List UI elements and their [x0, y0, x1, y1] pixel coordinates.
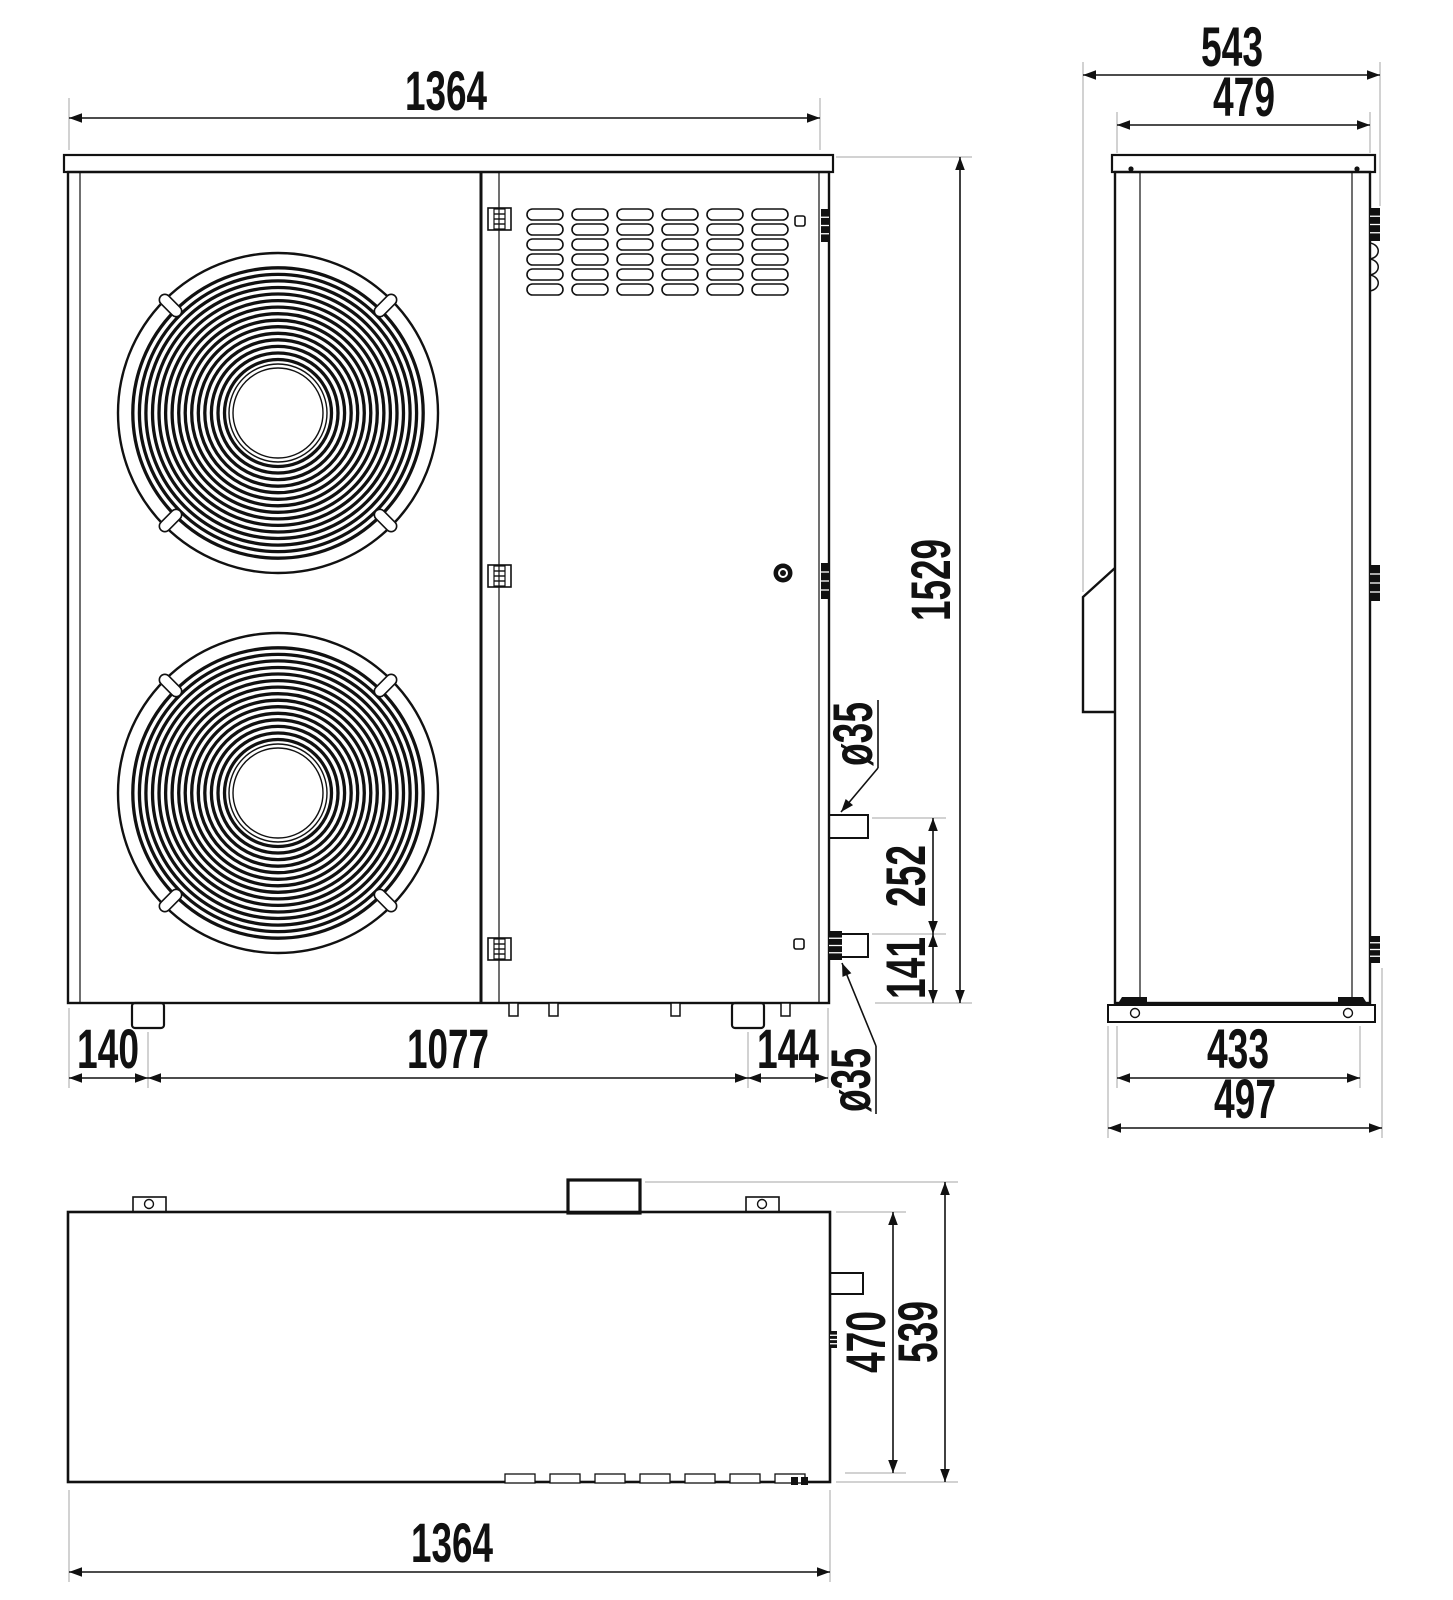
- base-foot-right: [1338, 997, 1368, 1005]
- drain-tab: [781, 1003, 790, 1016]
- door-square-hole-bottom: [794, 939, 804, 949]
- fan-grille-lower: [118, 633, 438, 953]
- louver-slot: [527, 284, 563, 295]
- louver-slot: [617, 224, 653, 235]
- dim-front-width: 1364: [69, 59, 820, 150]
- dim-foot-left-label: 140: [77, 1017, 139, 1080]
- top-latch-right: [746, 1197, 779, 1212]
- louver-slot: [527, 224, 563, 235]
- drain-tabs: [509, 1003, 790, 1016]
- cap-screw-right: [1354, 166, 1359, 171]
- louver-slot: [752, 209, 788, 220]
- base-hole-left: [1131, 1009, 1140, 1018]
- louver-slot: [527, 239, 563, 250]
- drain-tab: [509, 1003, 518, 1016]
- louver-slot: [572, 224, 608, 235]
- louver-slot: [662, 224, 698, 235]
- top-drain-tab: [775, 1474, 805, 1483]
- louver-slot: [662, 254, 698, 265]
- louver-slot: [707, 224, 743, 235]
- louver-slot: [527, 269, 563, 280]
- louver-slot: [572, 209, 608, 220]
- door-lock: [774, 564, 793, 583]
- dim-feet-span-label: 1077: [407, 1017, 489, 1080]
- fan-hub: [233, 368, 323, 458]
- fan-hub: [233, 748, 323, 838]
- louver-slot: [527, 209, 563, 220]
- louver-slot: [707, 254, 743, 265]
- dim-pipe-spacing-label: 252: [874, 845, 937, 907]
- front-mount-bracket-lower: [821, 563, 829, 599]
- side-view: [1083, 155, 1378, 1022]
- pipe-fitting-ribbed: [829, 931, 842, 960]
- louver-slot: [617, 254, 653, 265]
- top-edge-mark-b: [801, 1477, 808, 1485]
- louver-slot: [707, 209, 743, 220]
- top-view: [68, 1180, 863, 1485]
- louver-slot: [752, 254, 788, 265]
- louver-slot: [662, 209, 698, 220]
- louver-slot: [572, 284, 608, 295]
- top-junction-box: [568, 1180, 640, 1213]
- louver-slot: [617, 209, 653, 220]
- top-drain-tabs: [505, 1474, 805, 1483]
- louver-slot: [617, 269, 653, 280]
- top-drain-tab: [640, 1474, 670, 1483]
- fan-grille-upper: [118, 253, 438, 573]
- drawing-canvas: 1364 1529 252 141 ø35 ø35 140: [0, 0, 1453, 1600]
- vent-square-hole-top: [795, 216, 805, 226]
- dim-side-depth-body-label: 479: [1213, 65, 1275, 128]
- dim-pipe-spacing: 252: [872, 818, 946, 934]
- front-mount-bracket-upper: [821, 209, 829, 242]
- drain-tab: [549, 1003, 558, 1016]
- top-pipe-stub: [830, 1273, 863, 1294]
- dimension-drawing: 1364 1529 252 141 ø35 ø35 140: [0, 0, 1453, 1600]
- base-foot-left: [1117, 997, 1147, 1005]
- top-edge-mark-a: [791, 1477, 798, 1485]
- side-scallops: [1370, 243, 1378, 291]
- side-mount-bracket-middle: [1370, 565, 1380, 601]
- louver-slot: [572, 239, 608, 250]
- top-drain-tab: [595, 1474, 625, 1483]
- louver-slot: [707, 284, 743, 295]
- side-mount-bracket-lower: [1370, 936, 1380, 963]
- front-view: [64, 155, 868, 1028]
- side-pipe-cover-bracket: [1083, 568, 1115, 712]
- top-latch-left: [133, 1197, 166, 1212]
- louver-slot: [662, 269, 698, 280]
- side-top-panel: [1112, 155, 1375, 172]
- dim-pipe-top-diameter-label: ø35: [821, 702, 884, 766]
- louver-slot: [617, 284, 653, 295]
- base-hole-right: [1344, 1009, 1353, 1018]
- louver-slot: [527, 254, 563, 265]
- dim-front-width-label: 1364: [405, 59, 487, 122]
- dim-top-width-label: 1364: [411, 1511, 493, 1574]
- louver-slot: [617, 239, 653, 250]
- dim-front-height-label: 1529: [899, 539, 962, 621]
- louver-slot: [707, 269, 743, 280]
- top-body: [68, 1212, 830, 1482]
- louver-slot: [707, 239, 743, 250]
- drain-tab: [671, 1003, 680, 1016]
- dim-side-base-width-label: 497: [1214, 1067, 1276, 1130]
- louver-slot: [572, 254, 608, 265]
- dim-top-depth-overall: 539: [645, 1182, 958, 1482]
- top-edge-bump: [830, 1331, 837, 1348]
- dim-front-feet: 140 1077 144: [69, 1008, 828, 1088]
- louver-slot: [752, 239, 788, 250]
- top-drain-tab: [505, 1474, 535, 1483]
- mount-brackets: [821, 208, 1380, 1348]
- dim-side-depth-body: 479: [1117, 65, 1370, 153]
- dim-foot-right-label: 144: [757, 1017, 819, 1080]
- louver-slot: [662, 239, 698, 250]
- louver-slot: [752, 224, 788, 235]
- top-drain-tab: [550, 1474, 580, 1483]
- louver-slot: [572, 269, 608, 280]
- vent-grille: [527, 209, 788, 295]
- side-body: [1115, 172, 1370, 1003]
- side-mount-bracket-upper: [1370, 208, 1380, 241]
- dim-pipe-top-diameter: ø35: [821, 700, 884, 812]
- top-drain-tab: [730, 1474, 760, 1483]
- front-top-panel: [64, 155, 833, 172]
- dim-top-width: 1364: [69, 1490, 830, 1582]
- louver-slot: [752, 269, 788, 280]
- dim-top-depth-overall-label: 539: [886, 1301, 949, 1363]
- louver-slot: [662, 284, 698, 295]
- dim-pipe-bottom-height-label: 141: [874, 937, 937, 999]
- louver-slot: [752, 284, 788, 295]
- top-drain-tab: [685, 1474, 715, 1483]
- cap-screw-left: [1128, 166, 1133, 171]
- dim-pipe-bottom-height: 141: [874, 934, 937, 1003]
- water-pipe-top: [829, 815, 868, 838]
